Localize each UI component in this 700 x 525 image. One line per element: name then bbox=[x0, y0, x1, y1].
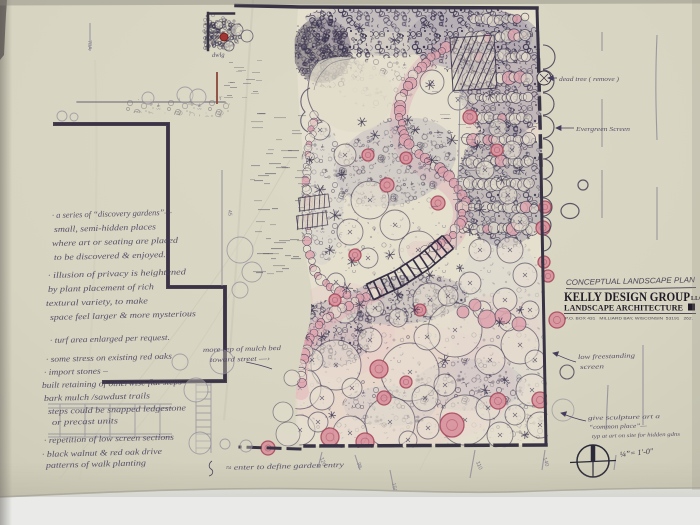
svg-text:Evergreen Screen: Evergreen Screen bbox=[575, 126, 630, 133]
svg-text:○: ○ bbox=[250, 444, 253, 450]
svg-text:screen: screen bbox=[580, 363, 604, 371]
svg-text:45-6: 45-6 bbox=[458, 88, 465, 99]
svg-text:· import stones –: · import stones – bbox=[44, 366, 109, 377]
svg-text:dead tree ( remove ): dead tree ( remove ) bbox=[559, 76, 619, 83]
svg-text:dwlg: dwlg bbox=[212, 52, 226, 59]
svg-text:LANDSCAPE ARCHITECTURE: LANDSCAPE ARCHITECTURE bbox=[564, 303, 683, 313]
svg-text:P.O. BOX 431 MILLIARD BAY, W: P.O. BOX 431 MILLIARD BAY, WISCONSIN 531… bbox=[565, 317, 693, 321]
svg-text:or precast units: or precast units bbox=[52, 416, 118, 427]
svg-text:45: 45 bbox=[226, 210, 233, 217]
svg-text:78A: 78A bbox=[86, 40, 92, 50]
